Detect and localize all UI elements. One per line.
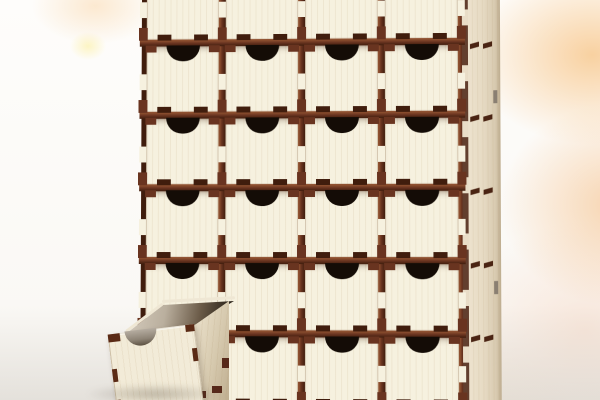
finger-joint-tab: [185, 324, 195, 332]
drawer-notch: [124, 328, 158, 348]
product-render-scene: [0, 0, 600, 400]
drawer-floor-shadow: [58, 380, 253, 400]
pulled-drawer: [0, 0, 600, 400]
finger-joint-tab: [108, 333, 121, 342]
finger-joint-tab: [222, 358, 229, 368]
